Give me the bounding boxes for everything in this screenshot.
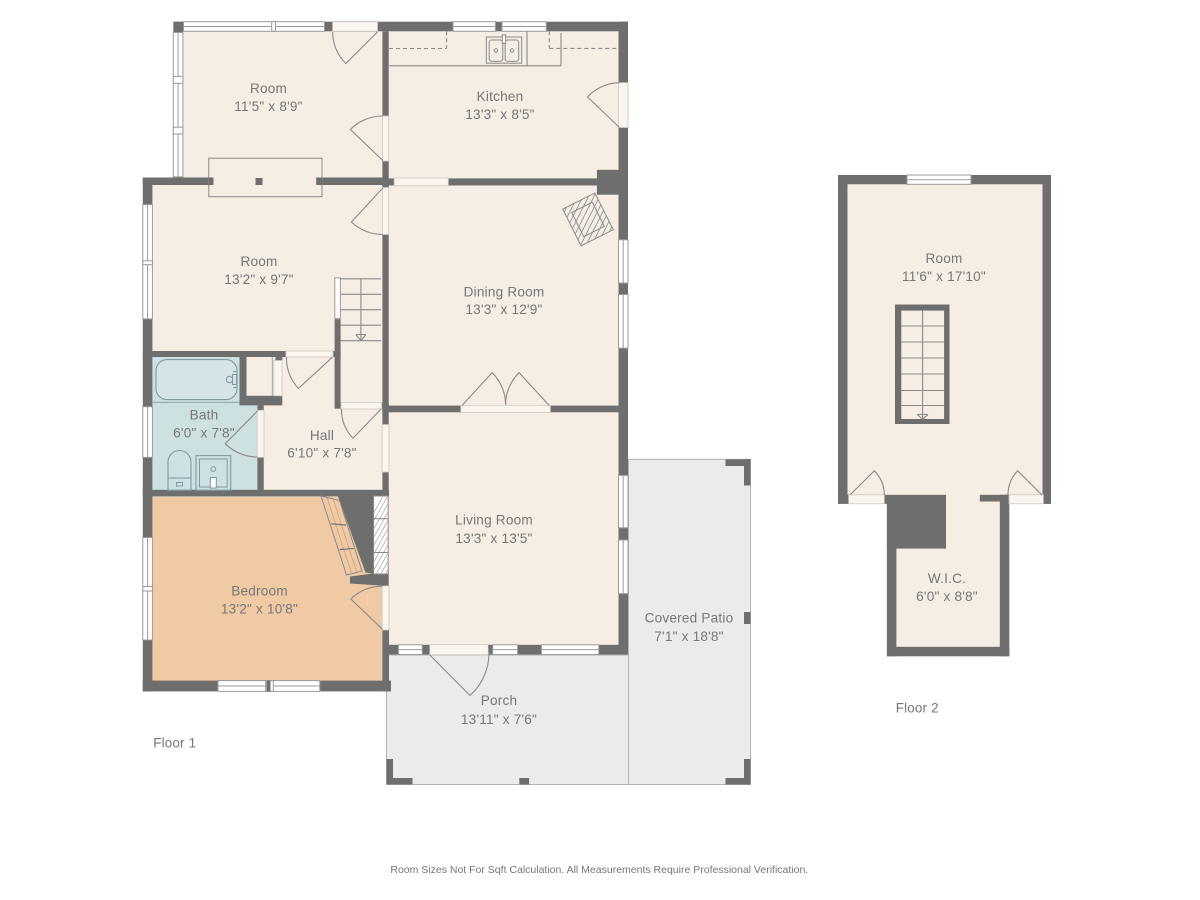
svg-text:Floor 1: Floor 1	[153, 736, 196, 751]
svg-text:Living Room: Living Room	[455, 513, 533, 528]
svg-text:13'2" x 9'7": 13'2" x 9'7"	[224, 272, 293, 287]
svg-text:Room: Room	[240, 254, 277, 269]
svg-text:Floor 2: Floor 2	[896, 701, 939, 716]
svg-text:Room: Room	[925, 251, 962, 266]
svg-text:Bedroom: Bedroom	[231, 584, 288, 599]
svg-text:Hall: Hall	[310, 428, 334, 443]
svg-text:13'2" x 10'8": 13'2" x 10'8"	[221, 602, 298, 617]
svg-text:13'3" x 13'5": 13'3" x 13'5"	[455, 531, 532, 546]
svg-text:13'3" x 8'5": 13'3" x 8'5"	[465, 107, 534, 122]
svg-text:13'11" x 7'6": 13'11" x 7'6"	[461, 712, 537, 727]
svg-text:11'6" x 17'10": 11'6" x 17'10"	[902, 269, 986, 284]
svg-text:13'3" x 12'9": 13'3" x 12'9"	[465, 302, 542, 317]
svg-text:Bath: Bath	[190, 408, 219, 423]
svg-text:Room Sizes Not For Sqft Calcul: Room Sizes Not For Sqft Calculation. All…	[390, 864, 808, 876]
svg-text:6'0" x 7'8": 6'0" x 7'8"	[173, 426, 235, 441]
svg-text:6'0" x 8'8": 6'0" x 8'8"	[916, 589, 978, 604]
svg-text:W.I.C.: W.I.C.	[928, 571, 966, 586]
svg-text:Room: Room	[250, 81, 287, 96]
svg-text:Kitchen: Kitchen	[477, 89, 524, 104]
svg-text:7'1" x 18'8": 7'1" x 18'8"	[654, 629, 723, 644]
svg-text:Porch: Porch	[481, 693, 518, 708]
svg-text:11'5" x 8'9": 11'5" x 8'9"	[234, 99, 302, 114]
svg-text:Covered Patio: Covered Patio	[645, 611, 734, 626]
svg-text:Dining Room: Dining Room	[464, 285, 545, 300]
svg-text:6'10" x 7'8": 6'10" x 7'8"	[287, 446, 356, 461]
